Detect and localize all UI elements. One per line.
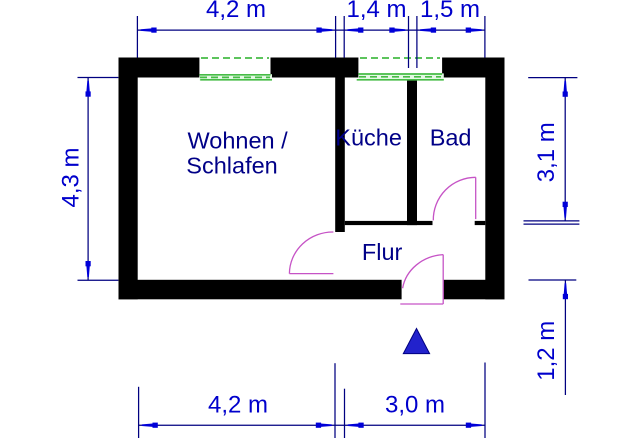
svg-text:Schlafen: Schlafen [186,153,277,179]
svg-text:4,3 m: 4,3 m [58,147,85,207]
svg-text:1,4 m: 1,4 m [346,0,406,23]
svg-text:4,2 m: 4,2 m [206,0,266,23]
svg-text:3,1 m: 3,1 m [533,122,560,182]
svg-text:4,2 m: 4,2 m [208,392,268,419]
svg-text:1,2 m: 1,2 m [533,321,560,381]
svg-text:Wohnen /: Wohnen / [188,128,289,154]
svg-text:3,0 m: 3,0 m [385,392,445,419]
svg-text:Flur: Flur [362,239,403,265]
svg-text:Bad: Bad [430,124,472,150]
svg-text:1,5 m: 1,5 m [420,0,480,23]
svg-text:Küche: Küche [335,124,402,150]
